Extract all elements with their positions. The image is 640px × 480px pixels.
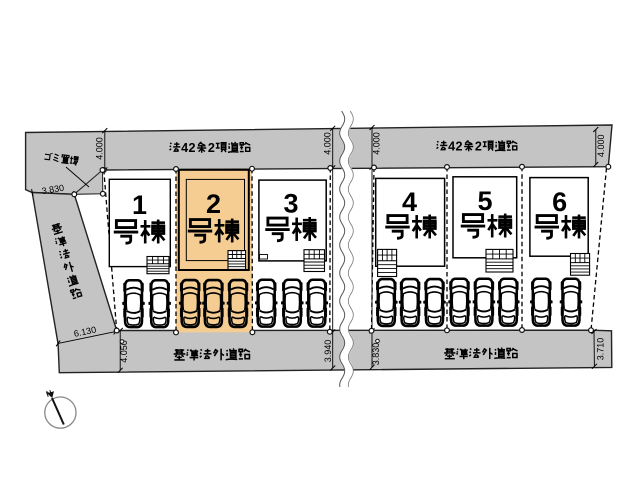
svg-text:6: 6 — [552, 187, 567, 217]
svg-text:2: 2 — [475, 140, 482, 154]
svg-text:4: 4 — [448, 140, 455, 154]
svg-text:3.940: 3.940 — [323, 340, 333, 363]
svg-text:4.000: 4.000 — [95, 137, 105, 160]
svg-text:3: 3 — [283, 189, 298, 219]
svg-text:2: 2 — [455, 140, 462, 154]
svg-text:4: 4 — [181, 141, 188, 155]
svg-text:4.000: 4.000 — [372, 132, 382, 155]
svg-text:1: 1 — [132, 190, 147, 220]
svg-text:4: 4 — [402, 187, 417, 217]
svg-text:2: 2 — [188, 141, 195, 155]
svg-text:2: 2 — [208, 141, 215, 155]
svg-text:4.050: 4.050 — [119, 340, 129, 363]
svg-text:3.830: 3.830 — [371, 343, 381, 366]
svg-text:3.710: 3.710 — [595, 338, 605, 361]
svg-text:4.000: 4.000 — [596, 135, 606, 158]
svg-text:2: 2 — [206, 189, 221, 219]
svg-text:4.000: 4.000 — [323, 132, 333, 155]
svg-text:5: 5 — [477, 186, 492, 216]
